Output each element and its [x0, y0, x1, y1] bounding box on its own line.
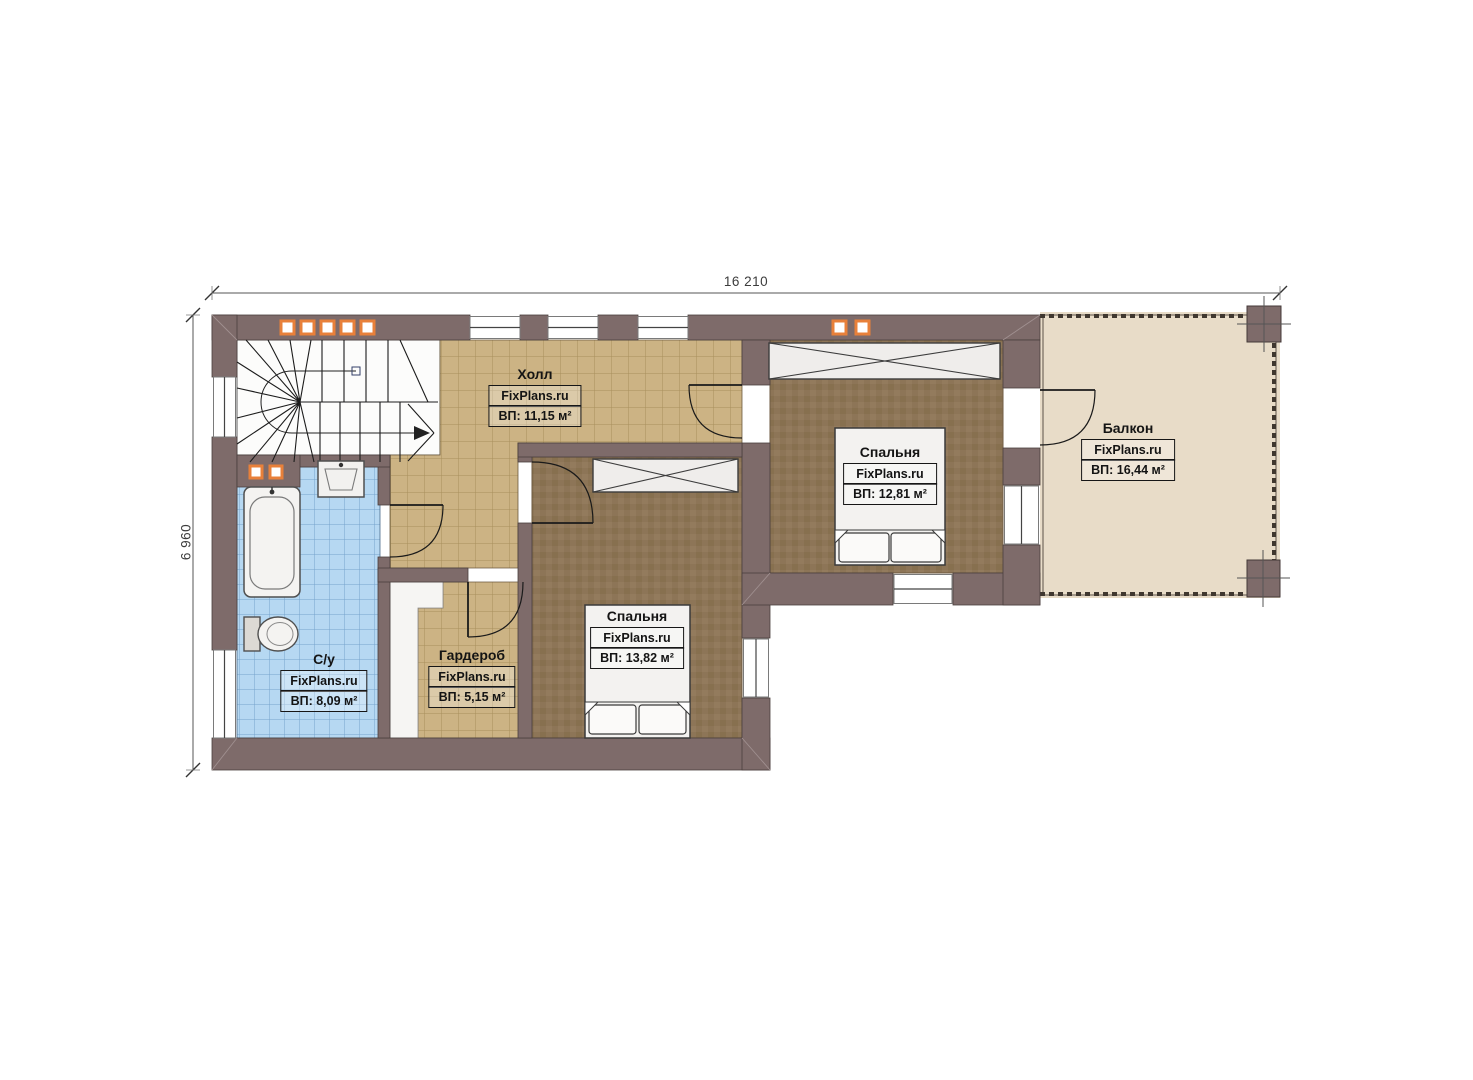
wall-bathroom-east-2 — [378, 557, 390, 738]
room-name-wardrobe: Гардероб — [428, 647, 515, 663]
stairwell-floor — [237, 340, 440, 455]
room-boxes-balcony: FixPlans.ru ВП: 16,44 м² — [1081, 439, 1175, 481]
room-name-bathroom: С/у — [280, 651, 367, 667]
wall-bottom — [212, 738, 770, 770]
area-box: ВП: 12,81 м² — [843, 483, 937, 505]
wall-right-section-bottom-1 — [742, 573, 893, 605]
window-top-2 — [548, 317, 598, 339]
room-boxes-wardrobe: FixPlans.ru ВП: 5,15 м² — [428, 666, 515, 708]
room-name-balcony: Балкон — [1081, 420, 1175, 436]
wall-top-3 — [598, 315, 638, 340]
window-left-lower — [214, 650, 236, 738]
window-top-3 — [638, 317, 688, 339]
brand-box: FixPlans.ru — [488, 385, 581, 407]
window-right-section-bottom — [894, 575, 952, 604]
vent-icon — [833, 321, 846, 334]
wall-bedroom-right-east-1 — [1003, 340, 1040, 388]
vent-icon — [361, 321, 374, 334]
room-label-hall: Холл FixPlans.ru ВП: 11,15 м² — [488, 366, 581, 427]
room-label-bathroom: С/у FixPlans.ru ВП: 8,09 м² — [280, 651, 367, 712]
vent-icon — [856, 321, 869, 334]
wall-bedroom-center-west-2 — [518, 523, 532, 738]
brand-box: FixPlans.ru — [590, 627, 684, 649]
room-name-hall: Холл — [488, 366, 581, 382]
room-label-balcony: Балкон FixPlans.ru ВП: 16,44 м² — [1081, 420, 1175, 481]
room-name-bedroom-right: Спальня — [843, 444, 937, 460]
vent-icon — [270, 466, 282, 478]
room-boxes-bathroom: FixPlans.ru ВП: 8,09 м² — [280, 670, 367, 712]
brand-box: FixPlans.ru — [1081, 439, 1175, 461]
window-top-1 — [470, 317, 520, 339]
area-box: ВП: 5,15 м² — [428, 686, 515, 708]
closet-bedroom-center — [593, 459, 738, 492]
wall-mid-v2 — [742, 443, 770, 638]
brand-box: FixPlans.ru — [428, 666, 515, 688]
vent-icon — [301, 321, 314, 334]
area-box: ВП: 16,44 м² — [1081, 459, 1175, 481]
wall-left-2 — [212, 437, 237, 650]
room-boxes-hall: FixPlans.ru ВП: 11,15 м² — [488, 385, 581, 427]
wall-top-2 — [520, 315, 548, 340]
room-label-bedroom-right: Спальня FixPlans.ru ВП: 12,81 м² — [843, 444, 937, 505]
toilet-icon — [244, 617, 298, 651]
floor-plan-drawing — [0, 0, 1473, 1080]
vent-icon — [321, 321, 334, 334]
brand-box: FixPlans.ru — [280, 670, 367, 692]
vent-icon — [250, 466, 262, 478]
wall-left-1 — [212, 315, 237, 377]
wall-wardrobe-top-1 — [378, 568, 468, 582]
floor-plan-canvas: 16 210 6 960 Холл FixPlans.ru ВП: 11,15 … — [0, 0, 1473, 1080]
dimension-width-label: 16 210 — [724, 274, 768, 289]
wall-mid-v3 — [742, 698, 770, 770]
wall-bedroom-right-east-2 — [1003, 448, 1040, 485]
vent-icon — [281, 321, 294, 334]
wall-mid-v1 — [742, 340, 770, 385]
room-name-bedroom-center: Спальня — [590, 608, 684, 624]
area-box: ВП: 8,09 м² — [280, 690, 367, 712]
area-box: ВП: 13,82 м² — [590, 647, 684, 669]
window-bedroom-right-east — [1005, 486, 1039, 544]
bathtub-icon — [244, 487, 300, 597]
dimension-height-label: 6 960 — [179, 524, 194, 560]
window-left-upper — [214, 377, 236, 437]
room-boxes-bedroom-center: FixPlans.ru ВП: 13,82 м² — [590, 627, 684, 669]
room-label-wardrobe: Гардероб FixPlans.ru ВП: 5,15 м² — [428, 647, 515, 708]
room-label-bedroom-center: Спальня FixPlans.ru ВП: 13,82 м² — [590, 608, 684, 669]
wall-bedroom-center-top — [518, 443, 742, 457]
area-box: ВП: 11,15 м² — [488, 405, 581, 427]
window-bedroom-center-east — [744, 639, 769, 697]
brand-box: FixPlans.ru — [843, 463, 937, 485]
wall-bedroom-right-east-3 — [1003, 545, 1040, 605]
vent-icon — [341, 321, 354, 334]
room-boxes-bedroom-right: FixPlans.ru ВП: 12,81 м² — [843, 463, 937, 505]
sink-icon — [318, 461, 364, 497]
closet-bedroom-right — [769, 343, 1000, 379]
